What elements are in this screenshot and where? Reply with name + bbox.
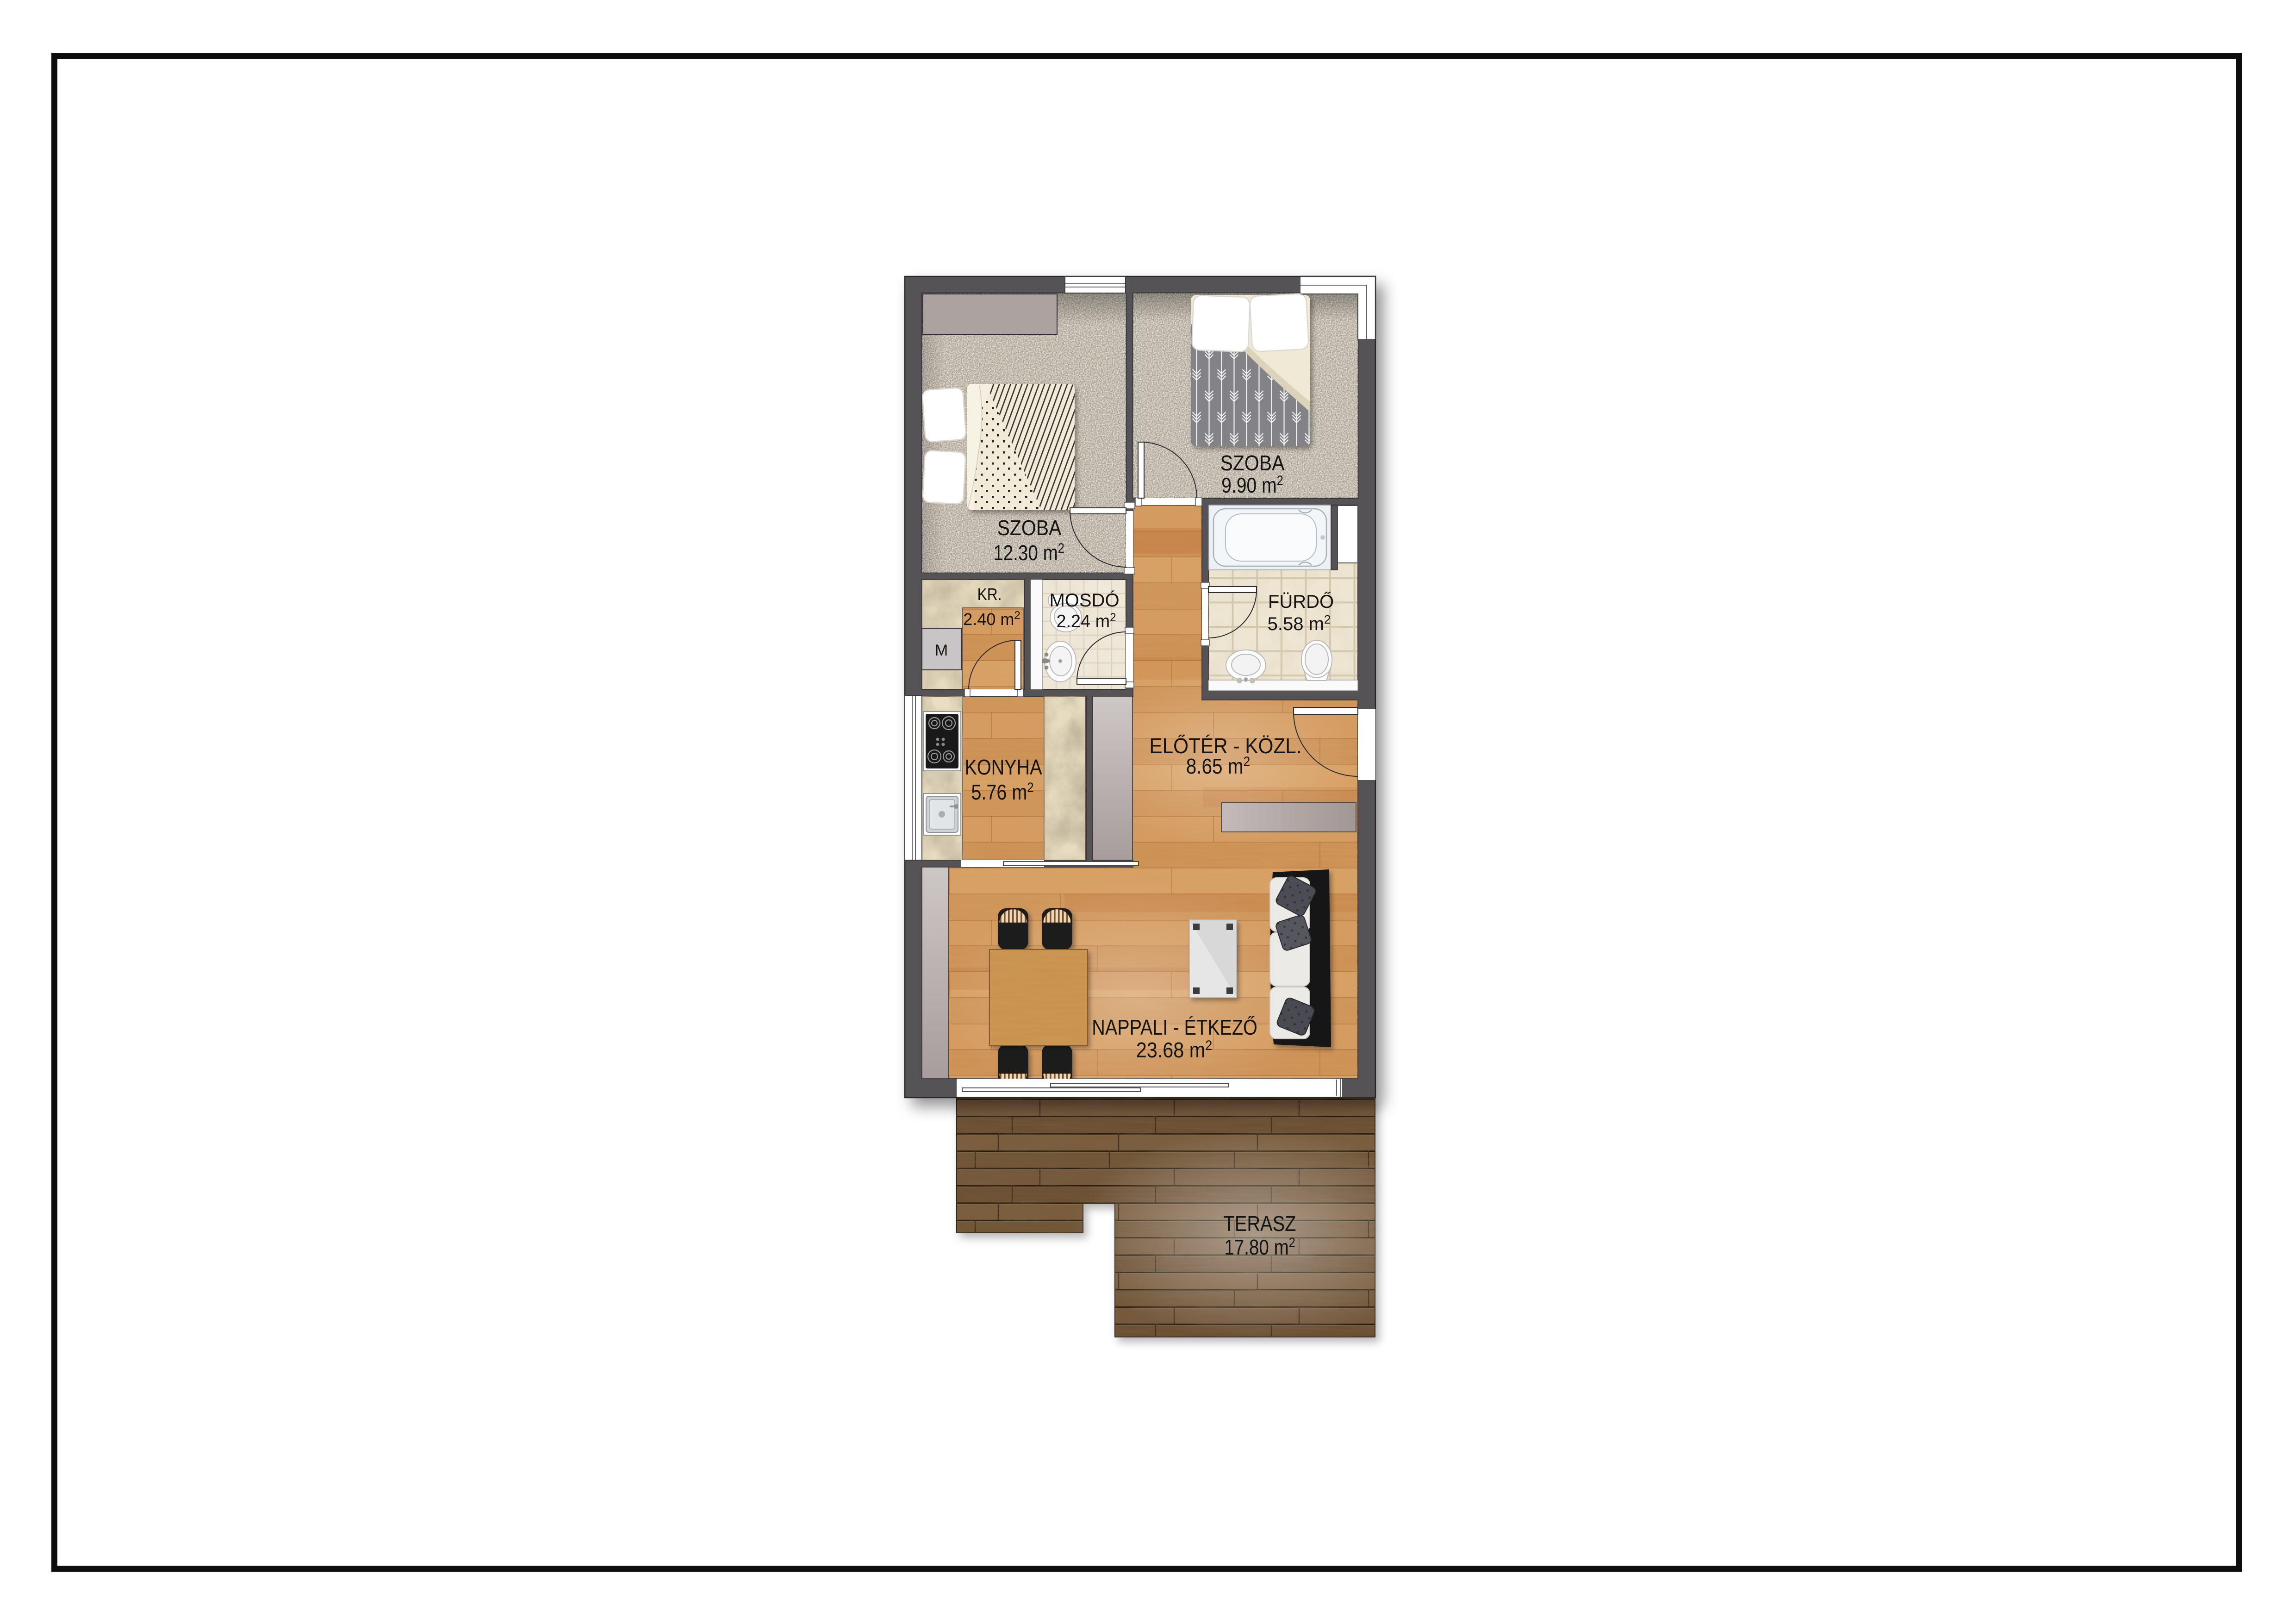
svg-text:2.24 m2: 2.24 m2 [1056,611,1116,631]
svg-text:MOSDÓ: MOSDÓ [1049,590,1119,611]
svg-text:5.58 m2: 5.58 m2 [1268,612,1331,634]
svg-text:KR.: KR. [977,585,1002,604]
svg-text:2.40 m2: 2.40 m2 [963,609,1020,629]
svg-text:9.90 m2: 9.90 m2 [1221,473,1283,498]
svg-text:SZOBA: SZOBA [997,517,1062,540]
svg-text:FÜRDŐ: FÜRDŐ [1268,591,1334,612]
svg-text:12.30 m2: 12.30 m2 [993,540,1064,565]
svg-text:5.76 m2: 5.76 m2 [971,780,1033,805]
svg-text:23.68 m2: 23.68 m2 [1136,1038,1213,1062]
svg-text:KONYHA: KONYHA [964,756,1042,779]
svg-text:NAPPALI - ÉTKEZŐ: NAPPALI - ÉTKEZŐ [1092,1016,1257,1039]
svg-text:17.80 m2: 17.80 m2 [1224,1235,1295,1259]
svg-text:8.65 m2: 8.65 m2 [1186,753,1250,778]
svg-text:TERASZ: TERASZ [1224,1212,1296,1236]
svg-text:M: M [935,642,948,659]
svg-text:SZOBA: SZOBA [1220,452,1285,475]
